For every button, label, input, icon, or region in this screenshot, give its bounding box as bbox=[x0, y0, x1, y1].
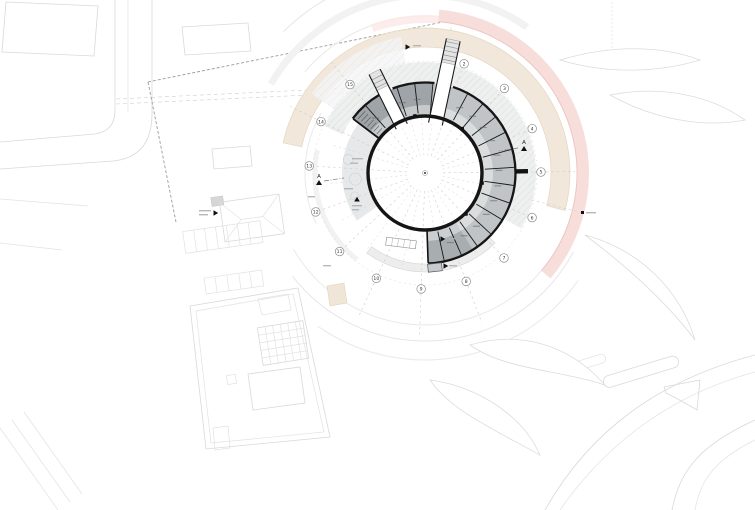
section-label-left: A bbox=[317, 174, 321, 180]
axis-number: 15 bbox=[347, 82, 353, 88]
axis-bubble-4: 4 bbox=[528, 124, 537, 133]
axis-bubble-8: 8 bbox=[462, 277, 471, 286]
axis-number: 13 bbox=[306, 164, 312, 170]
micro-label bbox=[199, 210, 211, 211]
axis-bubble-10: 10 bbox=[372, 274, 381, 283]
site-plan-canvas: { "plan": { "axis_labels": ["2","3","4",… bbox=[0, 0, 755, 510]
axis-number: 2 bbox=[463, 61, 466, 67]
parking-row-2 bbox=[204, 270, 264, 294]
axis-bubble-9: 9 bbox=[417, 285, 426, 294]
ring-building bbox=[353, 39, 528, 273]
context-buildings bbox=[2, 2, 252, 169]
axis-bubble-5: 5 bbox=[537, 168, 546, 177]
micro-label bbox=[372, 117, 379, 118]
micro-label bbox=[494, 185, 501, 186]
axis-bubble-14: 14 bbox=[317, 117, 326, 126]
axis-bubble-12: 12 bbox=[311, 208, 320, 217]
axis-number: 12 bbox=[313, 210, 319, 216]
micro-label bbox=[399, 102, 406, 103]
context-hip-roof-building bbox=[183, 188, 285, 294]
micro-label bbox=[414, 99, 421, 100]
axis-number: 10 bbox=[373, 276, 379, 282]
tan-paver-patch bbox=[327, 283, 347, 306]
micro-label bbox=[456, 107, 463, 108]
axis-bubble-3: 3 bbox=[500, 84, 509, 93]
section-marker-left: A bbox=[316, 174, 344, 185]
axis-number: 3 bbox=[503, 86, 506, 92]
micro-label bbox=[483, 214, 490, 215]
axis-bubble-7: 7 bbox=[500, 254, 509, 263]
micro-label bbox=[199, 214, 208, 215]
micro-label bbox=[447, 242, 454, 243]
micro-label bbox=[413, 45, 421, 46]
micro-label bbox=[488, 140, 495, 141]
axis-bubble-13: 13 bbox=[305, 162, 314, 171]
micro-label bbox=[480, 127, 487, 128]
axis-number: 9 bbox=[420, 287, 423, 293]
context-plot-southwest bbox=[190, 288, 330, 450]
micro-label bbox=[586, 212, 596, 213]
axis-number: 11 bbox=[337, 249, 343, 255]
axis-bubble-15: 15 bbox=[346, 80, 355, 89]
micro-label bbox=[461, 235, 468, 236]
micro-label bbox=[493, 154, 500, 155]
micro-label bbox=[352, 205, 362, 206]
micro-label bbox=[352, 209, 359, 210]
micro-label bbox=[350, 163, 358, 164]
parking-row-1 bbox=[183, 221, 263, 254]
axis-number: 14 bbox=[318, 119, 324, 125]
axis-number: 6 bbox=[531, 215, 534, 221]
micro-label bbox=[490, 200, 497, 201]
axis-number: 5 bbox=[540, 170, 543, 176]
micro-label bbox=[469, 116, 476, 117]
micro-label bbox=[473, 226, 480, 227]
axis-number: 7 bbox=[502, 256, 505, 262]
micro-label bbox=[308, 196, 315, 197]
micro-label bbox=[495, 170, 502, 171]
survey-point bbox=[581, 211, 584, 214]
axis-bubble-11: 11 bbox=[335, 247, 344, 256]
axis-bubble-2: 2 bbox=[460, 59, 469, 68]
section-label-right: A bbox=[522, 140, 526, 146]
micro-label bbox=[323, 265, 331, 266]
entrance-arrow bbox=[214, 210, 219, 216]
axis-number: 4 bbox=[531, 126, 534, 132]
micro-label bbox=[352, 158, 363, 159]
micro-label bbox=[447, 238, 456, 239]
axis-number: 8 bbox=[465, 279, 468, 285]
axis-bubble-6: 6 bbox=[528, 213, 537, 222]
architectural-site-plan: 23456789101112131415 A A bbox=[0, 0, 755, 510]
micro-label bbox=[344, 188, 353, 189]
micro-label bbox=[449, 265, 457, 266]
